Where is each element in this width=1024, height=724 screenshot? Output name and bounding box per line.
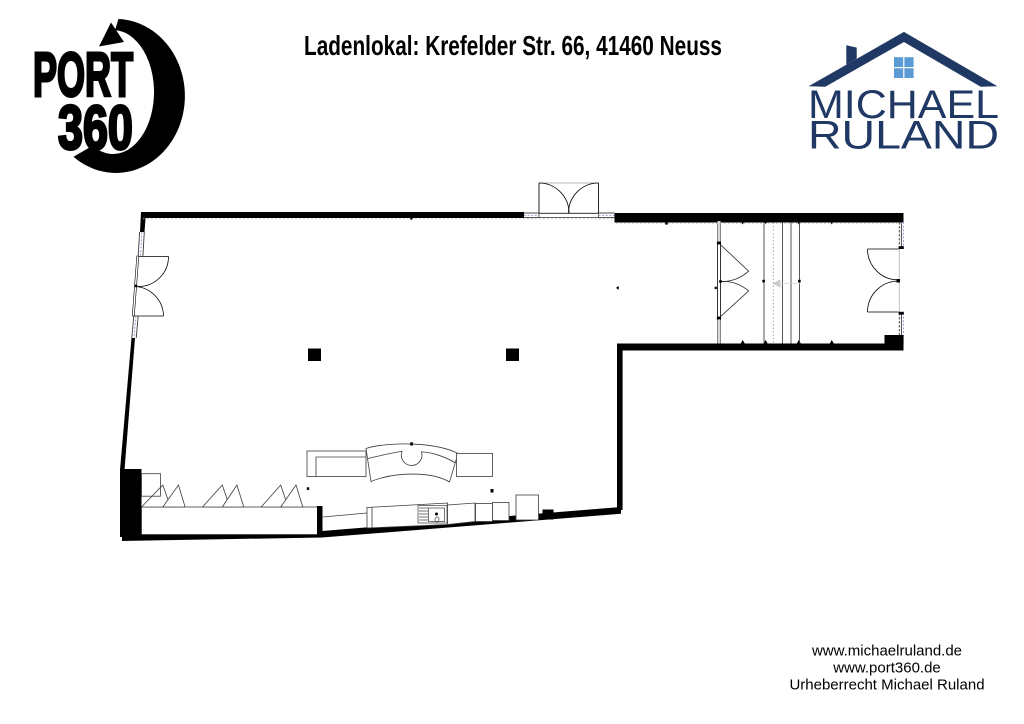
svg-text:www.port360.de: www.port360.de <box>832 660 941 677</box>
svg-text:Ladenlokal: Krefelder Str. 66,: Ladenlokal: Krefelder Str. 66, 41460 Neu… <box>304 30 722 61</box>
svg-text:360: 360 <box>58 94 133 163</box>
svg-text:RULAND: RULAND <box>808 113 999 157</box>
svg-text:Urheberrecht Michael Ruland: Urheberrecht Michael Ruland <box>789 677 984 694</box>
svg-text:www.michaelruland.de: www.michaelruland.de <box>811 643 962 660</box>
